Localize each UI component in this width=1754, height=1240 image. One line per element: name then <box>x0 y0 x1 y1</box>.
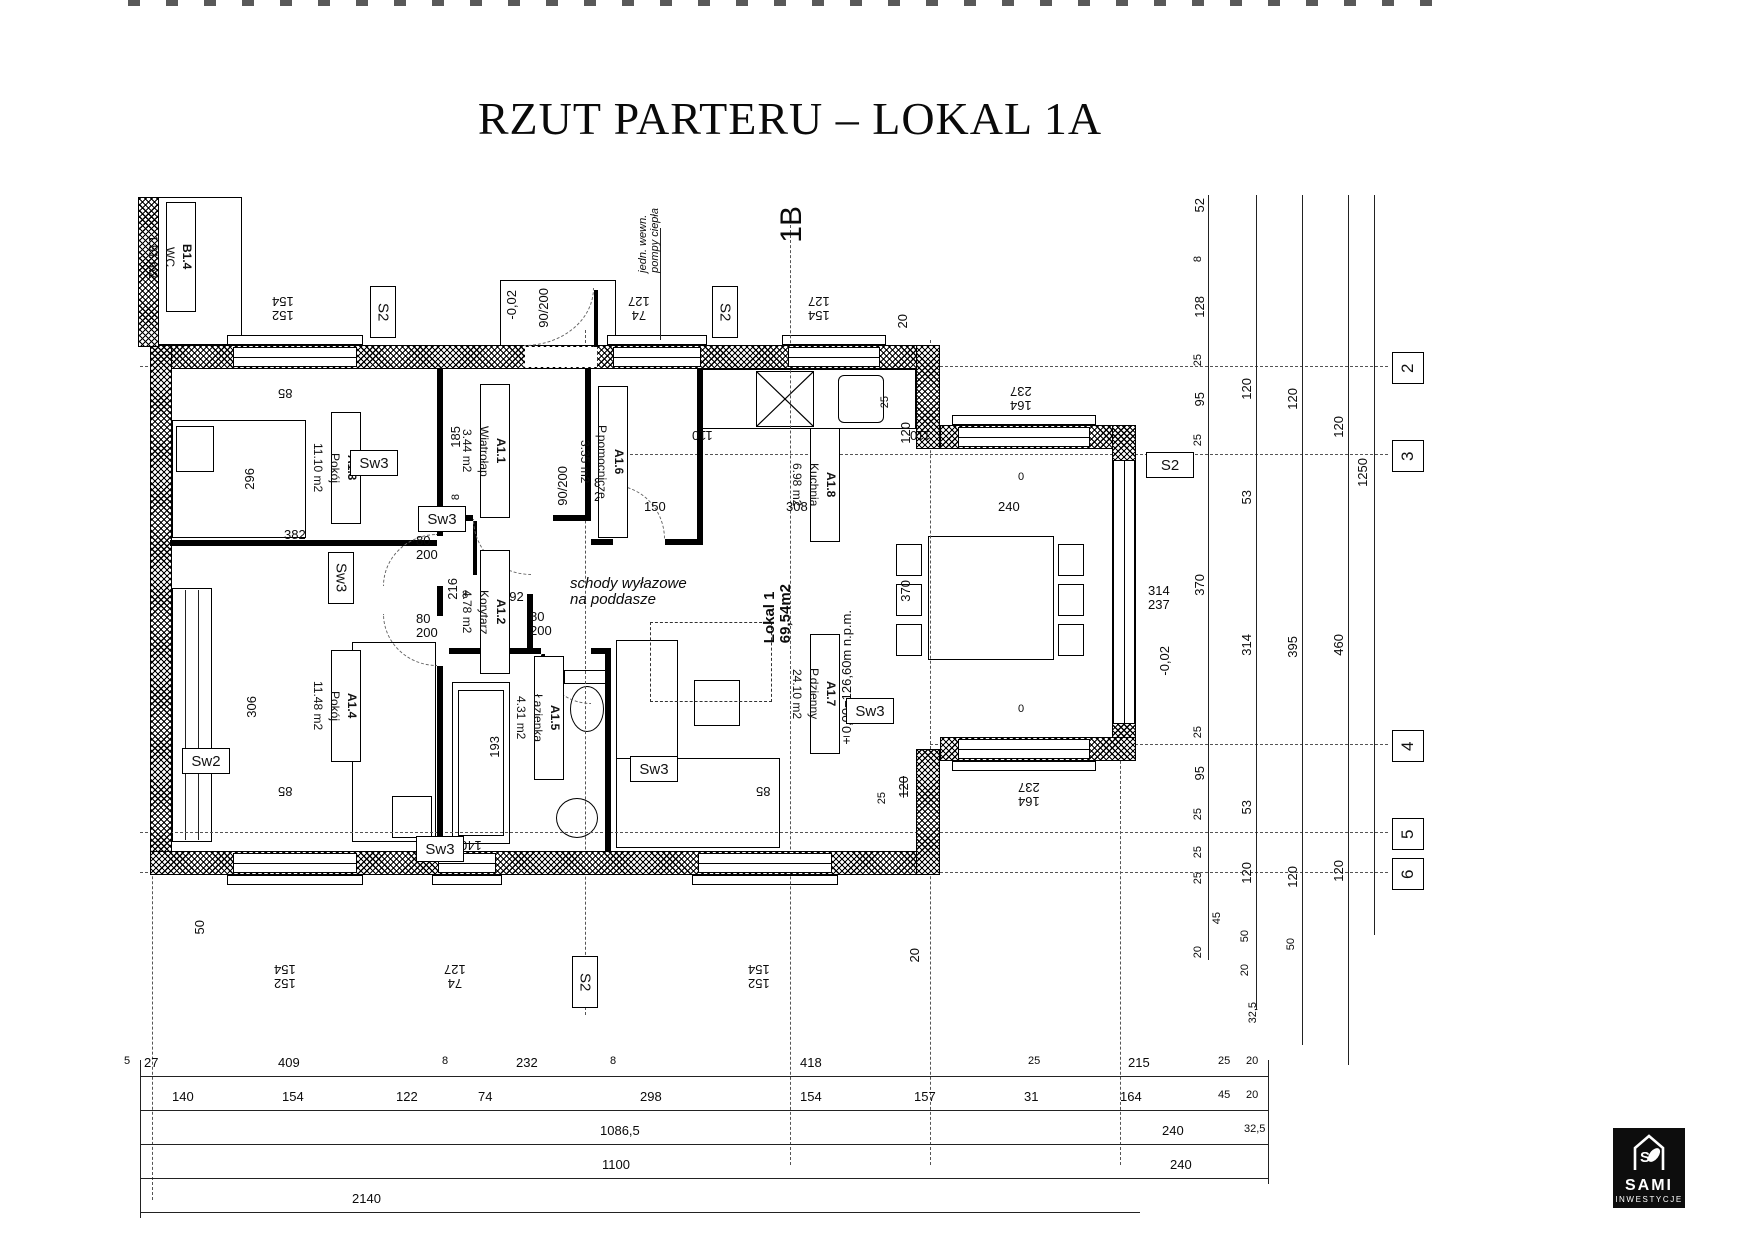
section-tag: Sw3 <box>416 836 464 862</box>
dim-label: 25 <box>877 792 889 804</box>
dim-label: 25 <box>880 396 892 408</box>
room-area: 11.10 m2 <box>312 443 324 492</box>
dim-label: -0,02 <box>1158 646 1172 676</box>
dim-label: 128 <box>1193 296 1207 318</box>
room-area: 11.48 m2 <box>312 681 324 730</box>
dim-label: 164 <box>1120 1090 1142 1104</box>
dim-label: 85 <box>756 784 770 798</box>
dim-label: 8 <box>442 1056 448 1068</box>
dim-label: 90/200 <box>537 288 551 328</box>
wall-segment <box>591 539 613 545</box>
dim-label: 120 <box>1240 378 1254 400</box>
room-id: A1.2 <box>495 599 507 624</box>
dim-chain <box>1302 195 1303 1045</box>
dim-label: 8 <box>451 494 463 500</box>
dim-label: 240 <box>1162 1124 1184 1138</box>
washer-inner <box>458 690 504 836</box>
room-label: A1.8 Kuchnia 6.98 m2 <box>810 428 840 542</box>
window-sill <box>692 875 838 885</box>
room-name: Wiatrołap <box>478 426 490 477</box>
dim-label: 1100 <box>602 1158 630 1172</box>
dim-label: jedn. wewn. pompy ciepła <box>638 208 662 273</box>
dim-chain <box>140 1110 1268 1111</box>
dim-label: 85 <box>278 784 292 798</box>
dim-label: 74 127 <box>444 962 466 990</box>
wall-segment <box>553 515 591 521</box>
cropped-top-drawing-strip <box>128 0 1458 6</box>
dim-label: 395 <box>1286 636 1300 658</box>
axis-line <box>140 832 1388 833</box>
room-area: 6.98 m2 <box>791 463 803 506</box>
room-name: Łazienka <box>532 694 544 742</box>
company-logo: S SAMI INWESTYCJE <box>1613 1128 1685 1208</box>
dim-label: 1250 <box>1356 458 1370 487</box>
wardrobe-line <box>198 590 199 840</box>
dim-label: 8 <box>1193 256 1205 262</box>
dim-label: 53 <box>1240 800 1254 814</box>
logo-house-icon: S <box>1627 1132 1671 1172</box>
dim-label: 120 <box>1332 416 1346 438</box>
dim-label: 85 <box>278 386 292 400</box>
dim-label: 370 <box>1193 574 1207 596</box>
dim-label: ±0,00=126,60m n.p.m. <box>840 610 854 748</box>
dim-label: 80 200 <box>416 612 438 640</box>
logo-subtitle: INWESTYCJE <box>1613 1195 1685 1205</box>
dim-label: 25 <box>1193 434 1205 446</box>
dim-label: 216 <box>446 578 460 600</box>
dim-label: 31 <box>1024 1090 1038 1104</box>
dim-label: 314 <box>1240 634 1254 656</box>
room-name: Pokój <box>329 691 341 721</box>
dim-label: 154 <box>800 1090 822 1104</box>
dim-label: 0 <box>1018 704 1024 716</box>
dim-label: 298 <box>640 1090 662 1104</box>
dim-label: 20 <box>908 948 922 962</box>
attic-hatch-outline <box>650 622 772 702</box>
grid-axis-bubble: 5 <box>1392 818 1424 850</box>
dim-label: 80 200 <box>416 534 438 562</box>
dim-chain <box>140 1076 1268 1077</box>
section-tag: S2 <box>712 286 738 338</box>
dim-label: 418 <box>800 1056 822 1070</box>
dim-label: 25 <box>1193 726 1205 738</box>
grid-axis-bubble: 6 <box>1392 858 1424 890</box>
dim-label: 1B <box>776 206 808 243</box>
dim-label: 50 <box>1240 930 1252 942</box>
dim-label: 232 <box>516 1056 538 1070</box>
entrance-door-leaf <box>594 290 598 347</box>
window-sill <box>227 335 363 345</box>
dim-chain <box>1208 195 1209 960</box>
room-area: 3.35 m2 <box>579 440 591 483</box>
wardrobe <box>172 588 212 842</box>
dining-table <box>928 536 1054 660</box>
dim-label: 409 <box>278 1056 300 1070</box>
axis-line <box>600 454 1388 455</box>
dim-chain-end <box>140 1060 141 1218</box>
dim-label: 164 237 <box>1010 384 1032 412</box>
dim-label: 460 <box>1332 634 1346 656</box>
dim-label: Lokal 1 69,54m2 <box>762 584 794 643</box>
dim-chain <box>1348 195 1349 1065</box>
page-title: RZUT PARTERU – LOKAL 1A <box>0 92 1580 145</box>
dim-label: 25 <box>1193 846 1205 858</box>
pillow <box>176 426 214 472</box>
room-id: A1.5 <box>549 705 561 730</box>
window <box>698 853 832 873</box>
window <box>788 347 880 367</box>
wall-segment <box>605 648 611 851</box>
wall-segment <box>665 539 703 545</box>
room-id: A1.6 <box>613 449 625 474</box>
dim-label: 90/200 <box>556 466 570 506</box>
dim-label: 152 154 <box>272 294 294 322</box>
dim-label: 2140 <box>352 1192 381 1206</box>
floor-plan-sheet: RZUT PARTERU – LOKAL 1A <box>0 0 1754 1240</box>
dim-label: 240 <box>998 500 1020 514</box>
dim-label: 140 <box>172 1090 194 1104</box>
dim-label: 5 <box>124 1056 130 1068</box>
dim-label: 154 <box>282 1090 304 1104</box>
grid-axis-bubble: 3 <box>1392 440 1424 472</box>
dim-label: 314 237 <box>1148 584 1170 612</box>
window-sill <box>607 335 707 345</box>
dim-label: 20 <box>1240 964 1252 976</box>
dim-label: 20 <box>1193 946 1205 958</box>
dim-label: 1086,5 <box>600 1124 640 1138</box>
logo-name: SAMI <box>1613 1177 1685 1195</box>
dim-chain <box>1374 195 1375 935</box>
entrance-door-gap <box>525 347 597 367</box>
room-label: A1.1 Wiatrołap 3.44 m2 <box>480 384 510 518</box>
room-label: A1.7 P.dzienny 24.10 m2 <box>810 634 840 754</box>
dim-label: 45 <box>1218 1090 1230 1102</box>
dim-label: 110 <box>910 428 931 442</box>
room-area: 3.44 m2 <box>461 429 473 472</box>
dim-label: 32,5 <box>1244 1124 1265 1136</box>
window <box>233 347 357 367</box>
dim-label: 150 <box>644 500 666 514</box>
wall-segment <box>437 666 443 851</box>
dim-label: 25 <box>1218 1056 1230 1068</box>
room-label: B1.4 WC 1.91 m2 <box>166 202 196 312</box>
dim-label: 20 <box>896 314 910 328</box>
dim-label: 95 <box>1193 766 1207 780</box>
dim-label: 50 <box>193 920 207 934</box>
dim-label: 193 <box>488 736 502 758</box>
wall-segment <box>437 586 443 616</box>
dim-label: 20 <box>1246 1056 1258 1068</box>
room-area: 24.10 m2 <box>791 669 803 719</box>
section-tag: S2 <box>370 286 396 338</box>
wall-right-lower <box>916 749 940 875</box>
dim-label: 120 <box>1240 862 1254 884</box>
window <box>233 853 357 873</box>
window-sill <box>952 761 1096 771</box>
dim-label: 95 <box>1193 392 1207 406</box>
section-tag: S2 <box>572 956 598 1008</box>
dim-label: 8 <box>610 1056 616 1068</box>
wardrobe-line <box>185 590 186 840</box>
dim-label: 382 <box>284 528 306 542</box>
dim-label: 32,5 <box>1248 1002 1260 1023</box>
room-label: A1.2 Korytarz 4.78 m2 <box>480 550 510 674</box>
dim-label: 0 <box>1018 472 1024 484</box>
dim-label: 164 237 <box>1018 780 1040 808</box>
room-id: A1.8 <box>825 472 837 497</box>
room-id: A1.4 <box>346 693 358 718</box>
section-tag: Sw3 <box>418 506 466 532</box>
kitchen-sink <box>838 375 884 423</box>
window-sill <box>782 335 886 345</box>
room-name: WC <box>164 247 176 267</box>
dim-label: 27 <box>144 1056 158 1070</box>
dim-label: 215 <box>1128 1056 1150 1070</box>
section-tag: S2 <box>1146 452 1194 478</box>
dim-label: 74 127 <box>628 294 650 322</box>
room-id: A1.1 <box>495 438 507 463</box>
section-tag: Sw3 <box>846 698 894 724</box>
dim-label: 120 <box>899 422 913 444</box>
window-sill <box>227 875 363 885</box>
grid-axis-bubble: 2 <box>1392 352 1424 384</box>
window-glazing <box>1113 460 1135 724</box>
dim-label: 120 <box>1332 860 1346 882</box>
dim-label: 306 <box>245 696 259 718</box>
dim-label: 370 <box>899 580 913 602</box>
window <box>958 427 1090 447</box>
dim-chain <box>140 1212 1140 1213</box>
dim-label: 157 <box>914 1090 936 1104</box>
dim-label: 80 200 <box>530 610 552 638</box>
dim-label: 20 <box>1246 1090 1258 1102</box>
dim-chain <box>140 1178 1268 1179</box>
section-tag: Sw3 <box>328 552 354 604</box>
dim-chain <box>140 1144 1268 1145</box>
section-tag: Sw3 <box>350 450 398 476</box>
wall-left <box>150 345 172 875</box>
dim-chain-end <box>1268 1060 1269 1184</box>
dim-label: 120 <box>897 776 911 798</box>
dim-label: 53 <box>1240 490 1254 504</box>
room-id: B1.4 <box>181 244 193 269</box>
dim-label: 154 127 <box>808 294 830 322</box>
dim-label: 52 <box>1193 198 1207 212</box>
dim-label: 152 154 <box>274 962 296 990</box>
room-name: P.dzienny <box>808 668 820 719</box>
dim-label: 25 <box>1193 354 1205 366</box>
wall-segment <box>697 369 703 545</box>
dim-label: -0,02 <box>505 290 519 320</box>
window-sill <box>952 415 1096 425</box>
room-id: A1.7 <box>825 681 837 706</box>
section-tag: Sw3 <box>630 756 678 782</box>
dim-label: 240 <box>1170 1158 1192 1172</box>
dim-label: 152 154 <box>748 962 770 990</box>
grid-axis-bubble: 4 <box>1392 730 1424 762</box>
dim-label: 74 <box>478 1090 492 1104</box>
dim-label: 122 <box>396 1090 418 1104</box>
chair <box>1058 544 1084 576</box>
window <box>958 739 1090 759</box>
room-area: 4.31 m2 <box>515 696 527 739</box>
room-label: A1.4 Pokój 11.48 m2 <box>331 650 361 762</box>
room-name: Kuchnia <box>808 463 820 506</box>
room-name: Pokój <box>329 453 341 483</box>
room-name: P.pomocnicze <box>596 425 608 499</box>
chair <box>896 624 922 656</box>
stove-icon <box>756 371 814 427</box>
chair <box>1058 624 1084 656</box>
dim-label: 25 <box>1193 808 1205 820</box>
window-sill <box>432 875 502 885</box>
room-area: 4.78 m2 <box>461 590 473 633</box>
room-area: 1.91 m2 <box>147 235 159 278</box>
dim-label: 120 <box>1286 388 1300 410</box>
dim-label: schody wyłazowe na poddasze <box>570 576 687 608</box>
room-name: Korytarz <box>478 590 490 635</box>
dim-label: 50 <box>1286 938 1298 950</box>
dim-label: 25 <box>1028 1056 1040 1068</box>
chair <box>1058 584 1084 616</box>
dim-label: 296 <box>243 468 257 490</box>
window <box>613 347 701 367</box>
dim-label: 45 <box>1212 912 1224 924</box>
dim-label: 110 <box>692 428 713 442</box>
room-label: A1.5 Łazienka 4.31 m2 <box>534 656 564 780</box>
dim-label: 120 <box>1286 866 1300 888</box>
room-label: A1.6 P.pomocnicze 3.35 m2 <box>598 386 628 538</box>
dim-label: 25 <box>1193 872 1205 884</box>
section-tag: Sw2 <box>182 748 230 774</box>
chair <box>896 544 922 576</box>
dim-chain <box>1256 195 1257 1010</box>
